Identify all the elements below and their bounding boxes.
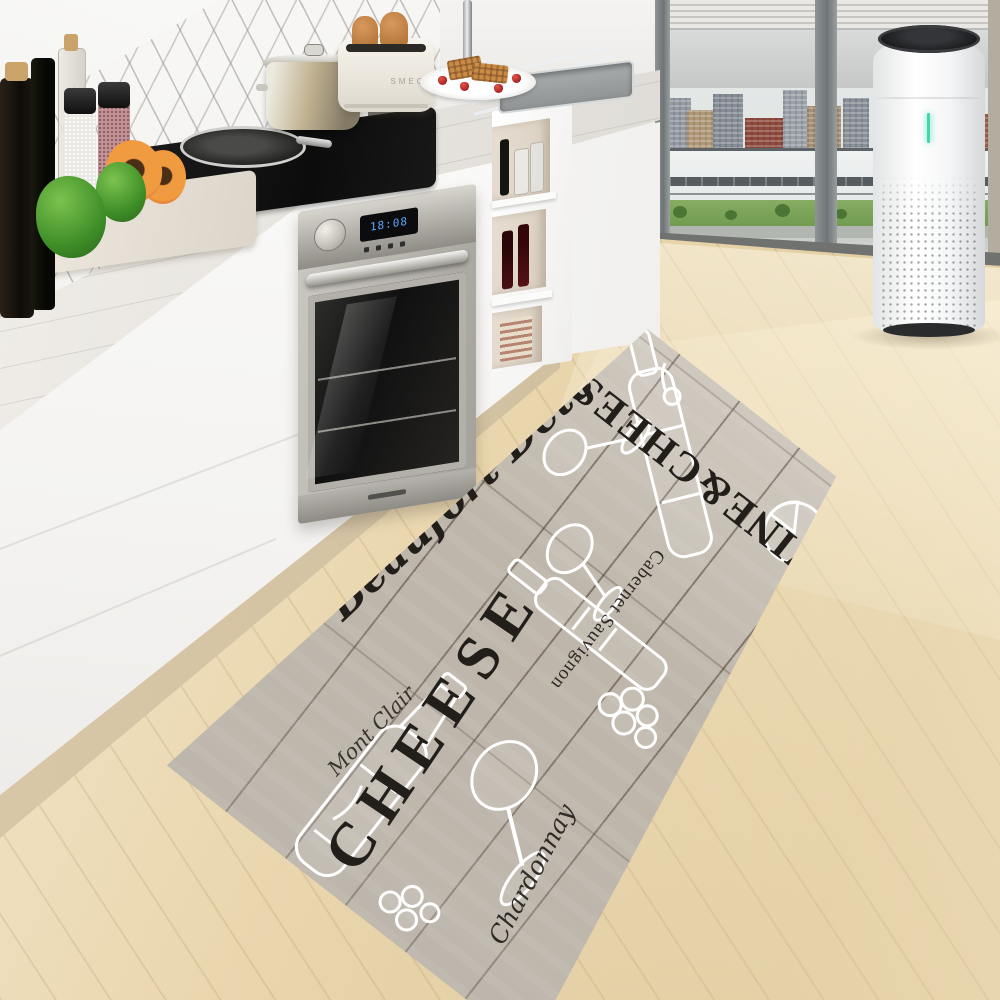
toaster-base [344,104,428,108]
purifier-perforation [880,175,978,327]
green-pepper [36,176,106,258]
glass-bottle [500,139,509,196]
jar-cork [5,62,28,81]
oven-glass-reflection [305,296,397,479]
toast-slice [352,16,378,46]
purifier-led-indicator [927,113,930,143]
glass-bottle [514,147,529,195]
bottle-cork [64,34,78,51]
grinder-cap [64,88,96,114]
purifier-seam [877,97,981,99]
dark-glass-jar [0,78,34,318]
oven-door-glass [308,271,466,492]
waffle [471,62,509,84]
kitchen-scene: 18:08 [0,0,1000,1000]
toast-slice [380,12,408,45]
tree [775,204,790,217]
strawberry [512,74,521,83]
food-package [500,315,532,362]
smeg-toaster: SMEG [338,38,434,112]
breakfast-plate [420,64,536,100]
open-shelf-unit [492,99,572,374]
tree [725,210,737,220]
shelf-niche-top [492,118,550,201]
strawberry [438,76,447,85]
frying-pan [180,126,306,168]
purifier-base [883,323,975,337]
tree [673,206,687,218]
strawberry [460,82,469,91]
glass-bottle [530,141,544,193]
oven-button [364,247,369,253]
air-purifier [873,25,985,337]
pot-handle [256,84,268,91]
wine-bottle [502,230,513,290]
window-right-post [988,0,1000,262]
shelf-niche-middle [492,209,546,296]
oven-display: 18:08 [360,207,418,242]
shelf-niche-bottom [492,305,542,369]
oven-button [400,241,405,247]
built-in-oven: 18:08 [298,184,476,524]
wine-bottle [518,223,529,287]
oven-knob [314,216,346,253]
oven-button [388,243,393,249]
window-mullion-middle [815,0,837,262]
toaster-slot [346,44,426,52]
oven-button [376,245,381,251]
purifier-top-cap [878,25,980,53]
grinder-cap [98,82,130,108]
pot-lid-knob [304,44,324,56]
strawberry [494,84,503,93]
